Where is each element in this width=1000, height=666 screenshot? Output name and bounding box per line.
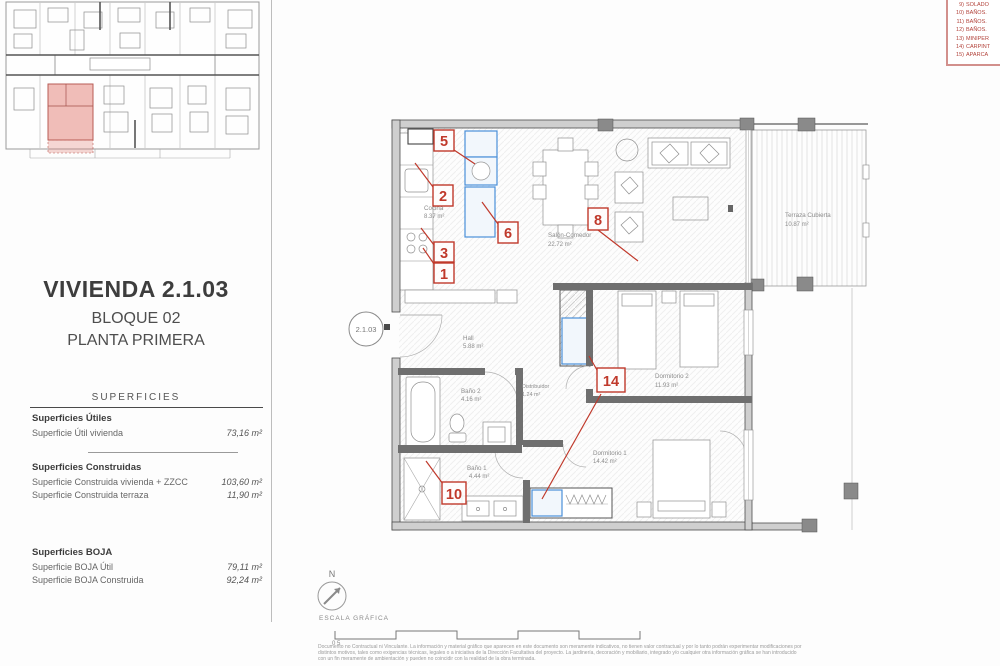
legend-item: 13)MINIPER (953, 35, 1000, 43)
unit-bubble: 2.1.03 (349, 312, 390, 346)
room-label-bano1: Baño 1 (467, 465, 487, 472)
surface-label: Superficie Construida vivienda + ZZCC (32, 476, 188, 489)
surfaces-group-construidas: Superficies Construidas Superficie Const… (32, 462, 262, 501)
scale-bar (335, 631, 640, 639)
marker-1: 1 (434, 263, 454, 283)
marker-2: 2 (433, 185, 453, 206)
legend-item: 11)BAÑOS. (953, 18, 1000, 26)
kitchen-column-appliance (465, 187, 495, 237)
marker-8: 8 (588, 208, 608, 230)
scale-label: ESCALA GRÁFICA (319, 613, 389, 622)
surfaces-rule (30, 407, 263, 408)
surface-label: Superficie Construida terraza (32, 489, 149, 502)
surfaces-group-title: Superficies Útiles (32, 413, 262, 424)
svg-text:5.88 m²: 5.88 m² (463, 344, 483, 350)
unit-floor: PLANTA PRIMERA (0, 332, 272, 350)
room-label-distribuidor: Distribuidor (522, 384, 549, 390)
legend-item: 10)BAÑOS. (953, 9, 1000, 17)
svg-text:14.42 m²: 14.42 m² (593, 459, 617, 465)
key-plan (0, 0, 270, 162)
svg-text:8: 8 (594, 213, 602, 229)
unit-title: VIVIENDA 2.1.03 (0, 276, 272, 303)
tv-unit (728, 205, 733, 212)
surface-value: 11,90 m² (227, 489, 262, 502)
footer-line: con un fin meramente de ambientación y p… (318, 656, 996, 662)
shower (404, 458, 440, 520)
key-plan-highlighted-unit (48, 84, 93, 153)
room-label-salon: Salón-Comedor (548, 232, 591, 239)
bathroom2-sink (483, 422, 511, 446)
floor-plan: Cocina 8.37 m² Salón-Comedor 22.72 m² Te… (330, 105, 890, 545)
svg-text:6: 6 (504, 226, 512, 242)
svg-text:N: N (329, 569, 336, 579)
unit-block: BLOQUE 02 (0, 310, 272, 328)
surface-row: Superficie Construida terraza 11,90 m² (32, 489, 262, 502)
room-label-hall: Hall (463, 335, 474, 342)
surface-row: Superficie BOJA Construida 92,24 m² (32, 574, 262, 587)
nightstand (662, 291, 676, 303)
surfaces-group-title: Superficies BOJA (32, 547, 262, 558)
legend-item: 15)APARCA (953, 51, 1000, 59)
surfaces-header: SUPERFICIES (0, 392, 272, 403)
surface-row: Superficie Útil vivienda 73,16 m² (32, 427, 262, 440)
surface-value: 79,11 m² (227, 561, 262, 574)
svg-text:1: 1 (440, 267, 448, 283)
surface-label: Superficie Útil vivienda (32, 427, 123, 440)
svg-text:4.44 m²: 4.44 m² (469, 474, 489, 480)
svg-text:2: 2 (439, 189, 447, 205)
svg-text:22.72 m²: 22.72 m² (548, 242, 572, 248)
room-label-bano2: Baño 2 (461, 388, 481, 395)
svg-text:10: 10 (446, 487, 462, 503)
surfaces-mini-rule (88, 452, 238, 453)
svg-text:10.87 m²: 10.87 m² (785, 222, 809, 228)
svg-text:1.24 m²: 1.24 m² (522, 392, 540, 398)
surfaces-group-title: Superficies Construidas (32, 462, 262, 473)
legend-box: 9)SOLADO 10)BAÑOS. 11)BAÑOS. 12)BAÑOS. 1… (946, 0, 1000, 66)
room-label-terraza: Terraza Cubierta (785, 212, 831, 219)
nightstand (637, 502, 651, 517)
footer-disclaimer: Documento no Contractual ni Vinculante. … (318, 644, 996, 663)
surfaces-group-utiles: Superficies Útiles Superficie Útil vivie… (32, 413, 262, 440)
room-label-dorm2: Dormitorio 2 (655, 373, 689, 380)
marker-3: 3 (434, 242, 454, 262)
legend-item: 12)BAÑOS. (953, 26, 1000, 34)
bathroom1-double-sink (462, 496, 523, 521)
wardrobe-column (560, 290, 590, 366)
legend-item: 9)SOLADO (953, 1, 1000, 9)
surface-value: 103,60 m² (221, 476, 262, 489)
unit-title-block: VIVIENDA 2.1.03 BLOQUE 02 PLANTA PRIMERA (0, 276, 272, 350)
fridge-appliance (465, 131, 497, 237)
legend-item: 14)CARPINT (953, 43, 1000, 51)
room-label-dorm1: Dormitorio 1 (593, 450, 627, 457)
marker-10: 10 (442, 482, 466, 504)
sofa (648, 138, 730, 168)
surface-label: Superficie BOJA Útil (32, 561, 113, 574)
svg-text:4.16 m²: 4.16 m² (461, 397, 481, 403)
marker-5: 5 (434, 130, 454, 151)
svg-text:14: 14 (603, 374, 619, 390)
svg-text:8.37 m²: 8.37 m² (424, 214, 444, 220)
bathtub (406, 377, 440, 448)
pillar (844, 483, 858, 499)
surface-value: 73,16 m² (226, 427, 262, 440)
svg-text:5: 5 (440, 134, 448, 150)
surface-row: Superficie Construida vivienda + ZZCC 10… (32, 476, 262, 489)
marker-14: 14 (597, 368, 625, 392)
surface-label: Superficie BOJA Construida (32, 574, 144, 587)
hall-console (405, 290, 517, 303)
surface-row: Superficie BOJA Útil 79,11 m² (32, 561, 262, 574)
svg-text:3: 3 (440, 246, 448, 262)
svg-text:11.93 m²: 11.93 m² (655, 383, 678, 389)
surfaces-group-boja: Superficies BOJA Superficie BOJA Útil 79… (32, 547, 262, 586)
north-arrow: N (318, 569, 346, 610)
terrace (750, 118, 869, 291)
nightstand (712, 502, 726, 517)
scale-block: N ESCALA GRÁFICA 0 5 (305, 565, 665, 645)
closet (530, 488, 612, 518)
plan-sheet: VIVIENDA 2.1.03 BLOQUE 02 PLANTA PRIMERA… (0, 0, 1000, 666)
kitchen-corner-unit (408, 129, 433, 144)
svg-text:2.1.03: 2.1.03 (356, 325, 377, 334)
surface-value: 92,24 m² (226, 574, 262, 587)
marker-6: 6 (498, 222, 518, 243)
